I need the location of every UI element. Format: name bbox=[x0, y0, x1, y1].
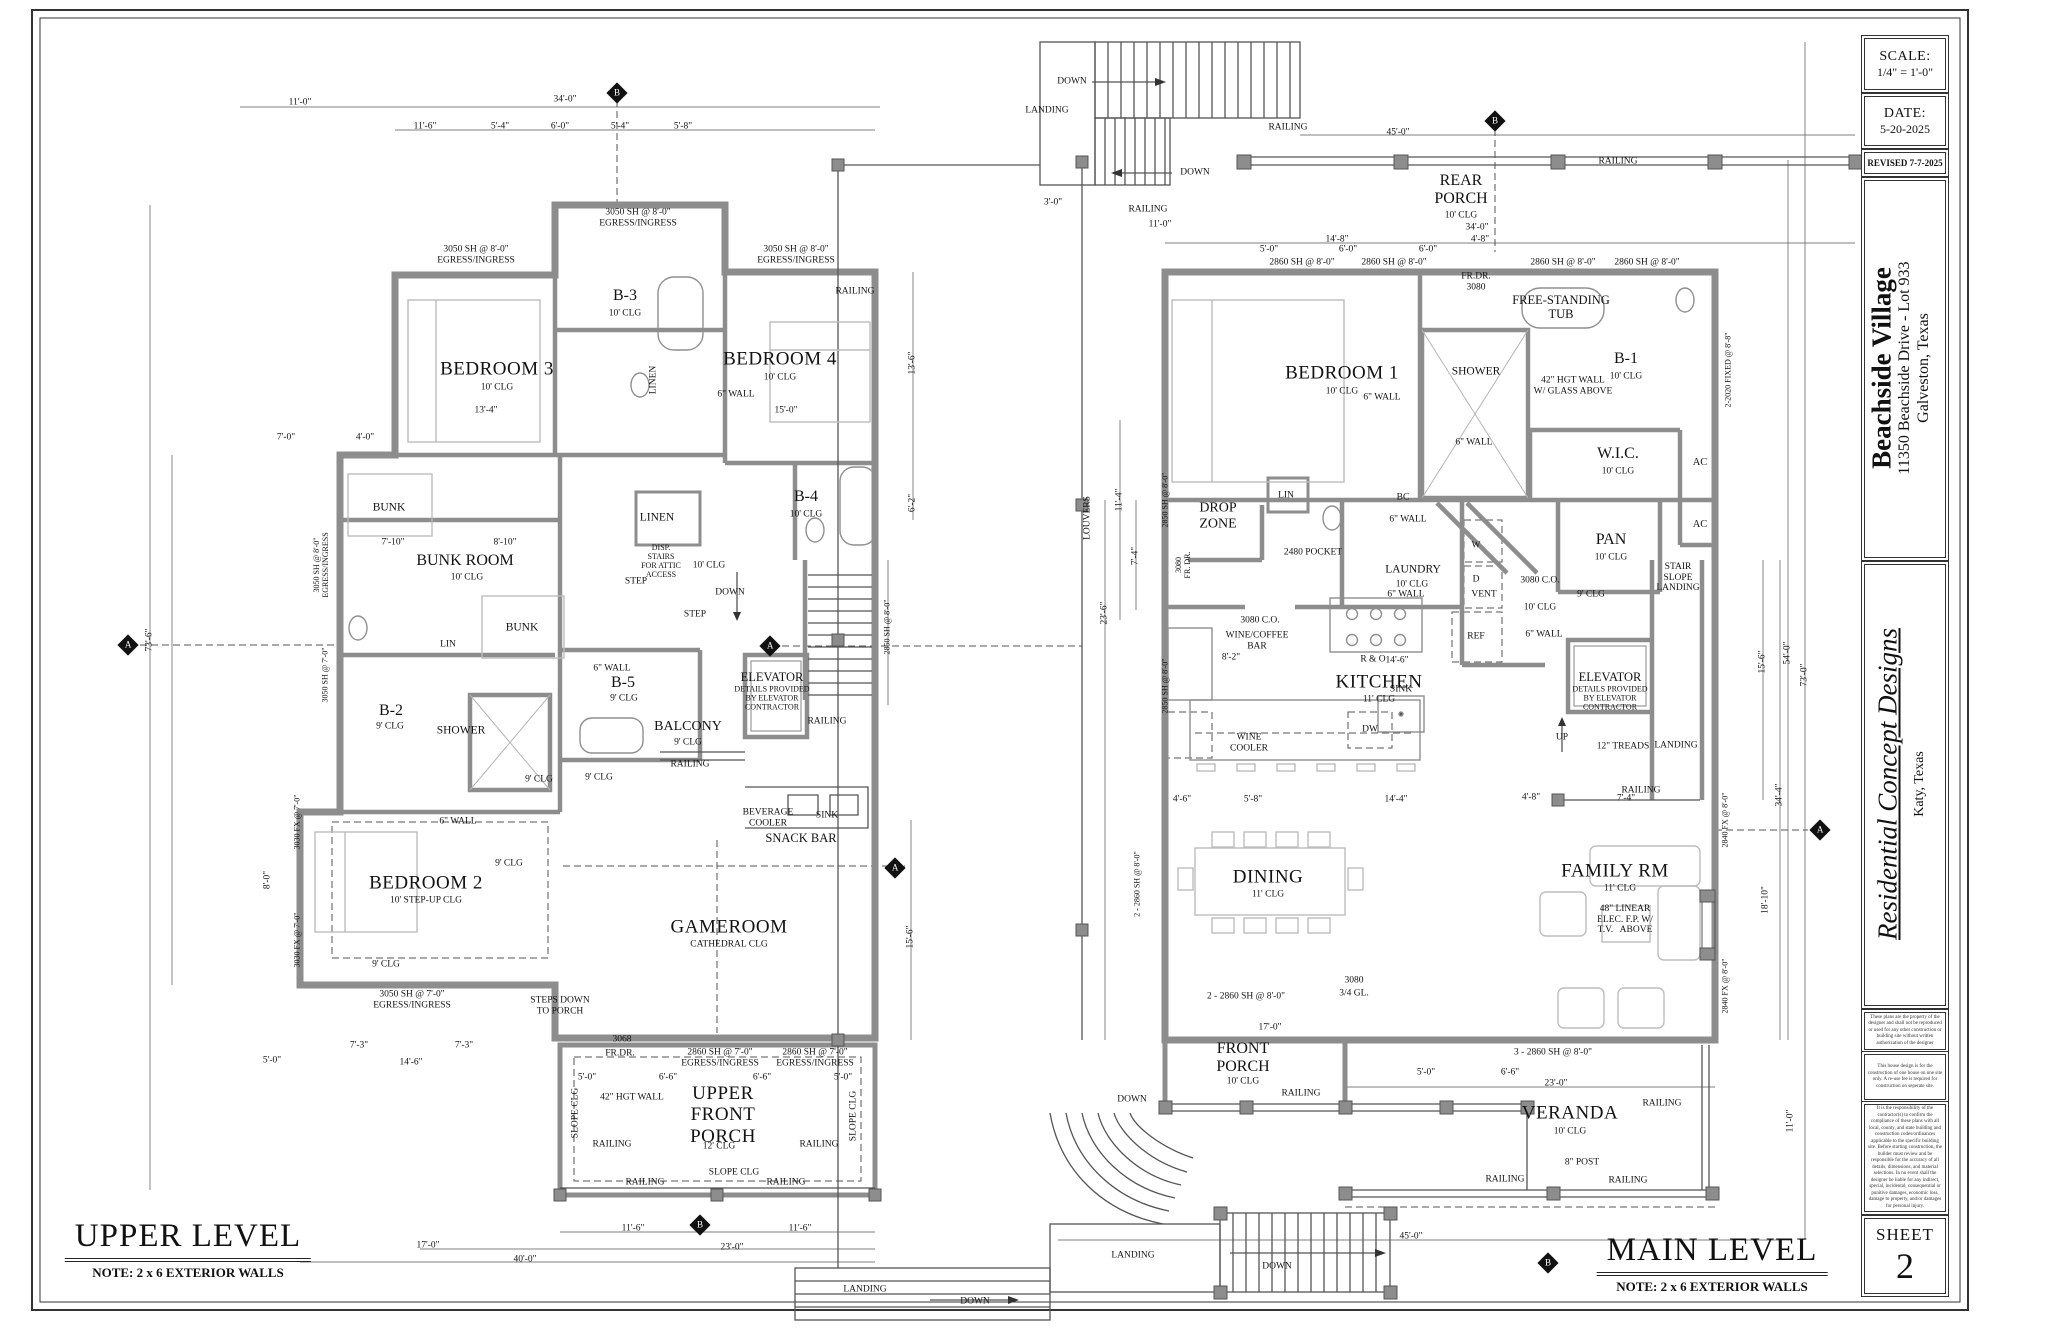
designer-city: Katy, Texas bbox=[1912, 564, 1928, 1004]
scale-label: SCALE: bbox=[1879, 49, 1930, 65]
project-address: 11350 Beachside Drive - Lot 933 bbox=[1896, 180, 1914, 556]
scale-value: 1/4" = 1'-0" bbox=[1877, 65, 1933, 80]
sheet-label: SHEET bbox=[1876, 1225, 1934, 1245]
project-city: Galveston, Texas bbox=[1915, 180, 1933, 556]
closet-walls bbox=[636, 478, 1308, 545]
disclaimer-2: This house design is for the constructio… bbox=[1865, 1062, 1945, 1092]
revised-note: REVISED 7-7-2025 bbox=[1867, 158, 1942, 168]
date-value: 5-20-2025 bbox=[1880, 122, 1930, 137]
disclaimer-box-1: These plans are the property of the desi… bbox=[1864, 1012, 1946, 1050]
upper-level-note: NOTE: 2 x 6 EXTERIOR WALLS bbox=[65, 1265, 311, 1281]
date-label: DATE: bbox=[1884, 106, 1926, 122]
upper-level-title-text: UPPER LEVEL bbox=[65, 1218, 311, 1262]
main-level-title: MAIN LEVEL NOTE: 2 x 6 EXTERIOR WALLS bbox=[1597, 1232, 1828, 1295]
main-level-title-text: MAIN LEVEL bbox=[1597, 1232, 1828, 1276]
disclaimer-3: It is the responsibility of the contract… bbox=[1865, 1104, 1945, 1212]
dimension-lines bbox=[150, 42, 1855, 1262]
main-level-note: NOTE: 2 x 6 EXTERIOR WALLS bbox=[1597, 1279, 1828, 1295]
designer-name: Residential Concept Designs bbox=[1873, 564, 1904, 1004]
posts bbox=[554, 155, 1863, 1299]
sheet-number: 2 bbox=[1896, 1245, 1914, 1287]
upper-level-title: UPPER LEVEL NOTE: 2 x 6 EXTERIOR WALLS bbox=[65, 1218, 311, 1281]
disclaimer-box-3: It is the responsibility of the contract… bbox=[1864, 1104, 1946, 1212]
floorplan-drawing bbox=[0, 0, 2048, 1336]
scale-box: SCALE: 1/4" = 1'-0" bbox=[1864, 38, 1946, 90]
disclaimer-box-2: This house design is for the constructio… bbox=[1864, 1054, 1946, 1100]
revised-box: REVISED 7-7-2025 bbox=[1864, 152, 1946, 174]
elevator-cab-outlines bbox=[751, 646, 1646, 731]
date-box: DATE: 5-20-2025 bbox=[1864, 96, 1946, 146]
stairs-and-railings bbox=[560, 42, 1855, 1320]
arrowheads bbox=[733, 78, 1566, 1304]
sheet-number-box: SHEET 2 bbox=[1864, 1218, 1946, 1294]
sheet-border bbox=[32, 10, 1968, 1310]
project-name: Beachside Village bbox=[1867, 180, 1898, 556]
blueprint-sheet: 11'-0"34'-0"11'-6"5'-4"6'-0"5'-4"5'-8"B3… bbox=[0, 0, 2048, 1336]
porch-walls bbox=[560, 1040, 1345, 1195]
interior-walls bbox=[340, 272, 1715, 812]
disclaimer-1: These plans are the property of the desi… bbox=[1865, 1013, 1945, 1050]
